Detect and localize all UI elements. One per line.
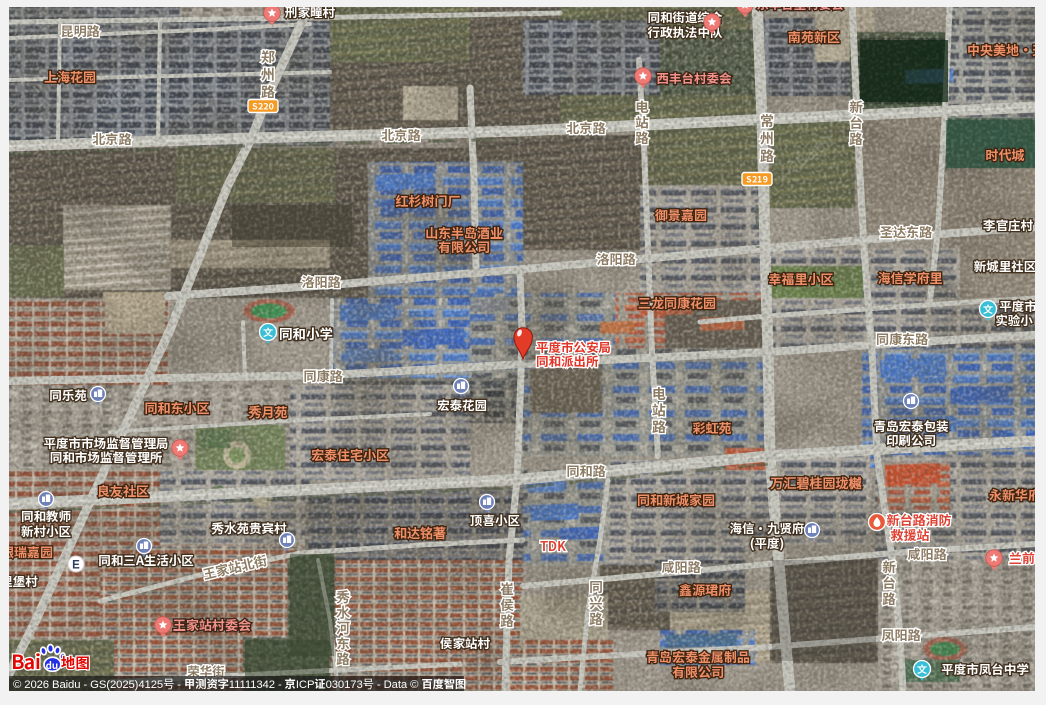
- svg-text:秀月苑: 秀月苑: [247, 402, 287, 421]
- svg-text:彩虹苑: 彩虹苑: [692, 418, 731, 437]
- svg-text:同康东路: 同康东路: [876, 329, 928, 348]
- svg-text:崔侯路: 崔侯路: [500, 578, 514, 630]
- svg-text:幸福里小区: 幸福里小区: [768, 269, 833, 288]
- svg-text:有限公司: 有限公司: [438, 237, 490, 256]
- svg-text:新台路: 新台路: [849, 96, 863, 148]
- svg-text:电站路: 电站路: [635, 96, 649, 147]
- svg-text:北京路: 北京路: [92, 129, 131, 148]
- svg-text:同和新城家园: 同和新城家园: [637, 490, 715, 509]
- svg-text:Bai: Bai: [11, 646, 40, 675]
- svg-text:S219: S219: [746, 173, 768, 186]
- svg-text:郑州路: 郑州路: [261, 47, 275, 102]
- svg-text:印刷公司: 印刷公司: [886, 430, 936, 449]
- svg-text:秀水河东路: 秀水河东路: [335, 586, 350, 668]
- svg-text:北京路: 北京路: [566, 118, 605, 137]
- svg-text:有限公司: 有限公司: [672, 662, 724, 681]
- svg-text:© 2026 Baidu - GS(2025)4125号 -: © 2026 Baidu - GS(2025)4125号 - 甲测资字11111…: [13, 677, 466, 691]
- svg-text:救援站: 救援站: [890, 525, 929, 544]
- svg-text:同兴路: 同兴路: [589, 576, 603, 628]
- svg-text:凤阳路: 凤阳路: [881, 625, 920, 644]
- svg-text:洛阳路: 洛阳路: [301, 272, 340, 291]
- svg-text:同和小学: 同和小学: [279, 323, 333, 343]
- svg-text:同和东小区: 同和东小区: [144, 398, 209, 417]
- svg-text:红杉树门厂: 红杉树门厂: [395, 191, 460, 210]
- svg-text:侯家站村: 侯家站村: [440, 633, 491, 652]
- svg-text:电站路: 电站路: [652, 384, 666, 437]
- svg-text:万汇碧桂园珑樾: 万汇碧桂园珑樾: [769, 473, 862, 492]
- svg-text:御景嘉园: 御景嘉园: [655, 205, 707, 224]
- svg-text:常州路: 常州路: [760, 111, 774, 166]
- svg-text:和达铭著: 和达铭著: [394, 523, 446, 542]
- svg-text:文: 文: [917, 661, 928, 676]
- svg-text:兰前: 兰前: [1009, 548, 1035, 567]
- svg-text:三龙同康花园: 三龙同康花园: [638, 293, 716, 312]
- svg-text:新城里社区: 新城里社区: [974, 256, 1037, 275]
- svg-text:同康路: 同康路: [303, 366, 342, 385]
- svg-text:李官庄村: 李官庄村: [983, 215, 1034, 234]
- svg-text:圣达东路: 圣达东路: [880, 222, 932, 241]
- svg-text:同和市场监督管理所: 同和市场监督管理所: [50, 447, 163, 466]
- svg-text:秀水苑贵宾村: 秀水苑贵宾村: [210, 518, 287, 537]
- svg-text:TDK: TDK: [540, 536, 566, 555]
- svg-text:平度市凤台中学: 平度市凤台中学: [941, 659, 1029, 678]
- svg-text:鑫源珺府: 鑫源珺府: [679, 580, 731, 599]
- svg-text:王家站村委会: 王家站村委会: [173, 615, 251, 634]
- svg-text:上海花园: 上海花园: [44, 67, 96, 86]
- svg-text:昆明路: 昆明路: [60, 21, 99, 40]
- svg-text:咸阳路: 咸阳路: [661, 557, 700, 576]
- svg-text:海信学府里: 海信学府里: [877, 268, 942, 287]
- svg-text:du: du: [46, 657, 59, 672]
- svg-text:文: 文: [263, 324, 274, 339]
- svg-text:E: E: [72, 557, 80, 573]
- svg-text:同和路: 同和路: [566, 461, 605, 480]
- svg-text:宏泰花园: 宏泰花园: [437, 395, 487, 414]
- svg-text:西丰台村委会: 西丰台村委会: [656, 68, 732, 87]
- svg-text:洛阳路: 洛阳路: [596, 249, 635, 268]
- svg-text:实验小: 实验小: [995, 310, 1033, 329]
- svg-text:同和派出所: 同和派出所: [536, 351, 599, 370]
- svg-text:永新华府: 永新华府: [989, 485, 1041, 504]
- svg-text:(平度): (平度): [750, 533, 784, 552]
- svg-text:南苑新区: 南苑新区: [788, 27, 840, 46]
- svg-text:新台路: 新台路: [882, 556, 896, 608]
- svg-text:北京路: 北京路: [381, 125, 420, 144]
- svg-text:时代城: 时代城: [985, 145, 1024, 164]
- svg-text:新村小区: 新村小区: [21, 521, 71, 540]
- svg-text:文: 文: [983, 301, 994, 316]
- svg-text:地图: 地图: [61, 652, 90, 673]
- svg-text:咸阳路: 咸阳路: [907, 544, 946, 563]
- svg-text:S220: S220: [252, 100, 274, 113]
- svg-text:同乐苑: 同乐苑: [49, 385, 87, 404]
- svg-text:宏泰住宅小区: 宏泰住宅小区: [311, 445, 389, 464]
- svg-text:良友社区: 良友社区: [97, 481, 149, 500]
- svg-text:顶喜小区: 顶喜小区: [470, 510, 520, 529]
- svg-text:中央美地·天: 中央美地·天: [967, 40, 1045, 59]
